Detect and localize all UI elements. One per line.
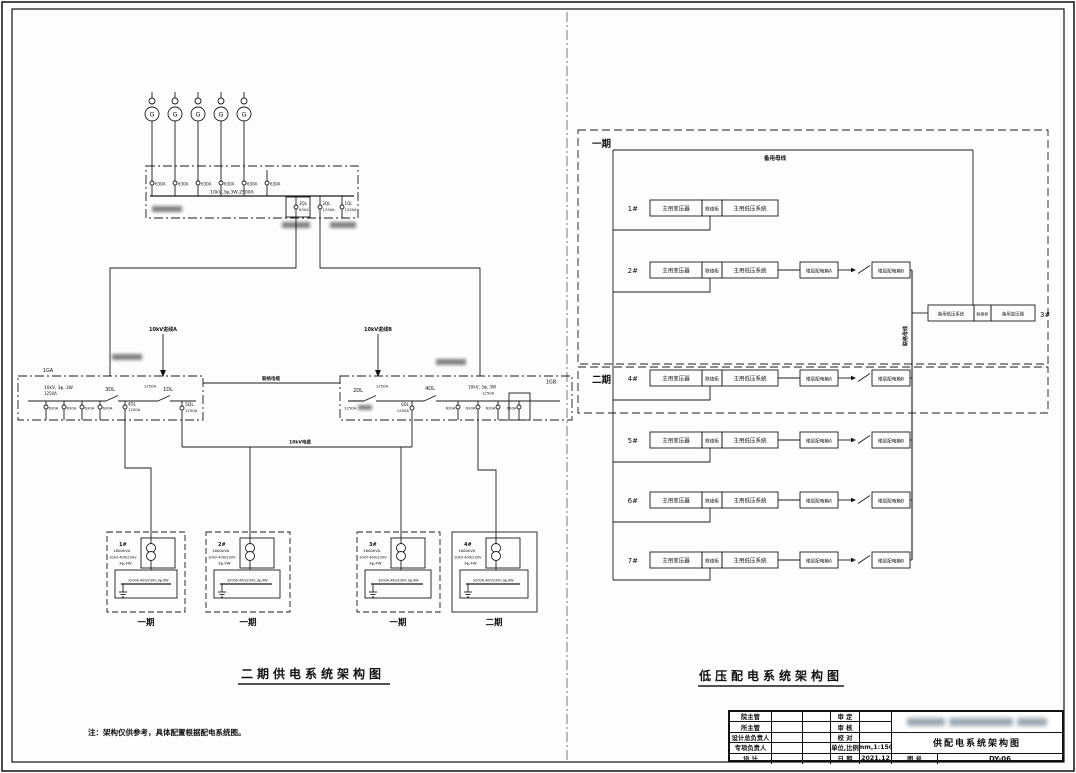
tx-ratio: 10kV-400/230V bbox=[359, 556, 387, 560]
signature-cell bbox=[772, 733, 803, 743]
signature-cell bbox=[772, 743, 803, 753]
bus-b-amp-low: 1250A bbox=[344, 406, 357, 411]
bus-b-box: 1GB 2DL 1250A 4DL 1250A 6DL 1250A 10kV, … bbox=[340, 376, 572, 447]
bus-b-amp: 1250A bbox=[482, 391, 495, 396]
gen-breaker-label: 630A bbox=[270, 182, 281, 187]
gen-to-bus-routing bbox=[110, 218, 480, 376]
main-transformer-box: 主用变压器 bbox=[662, 557, 690, 565]
bus-a-feeder-amp: 630A bbox=[49, 406, 59, 411]
tie-cabinet-box: 联络柜 bbox=[705, 558, 719, 565]
bus-a-feeder-amp: 630A bbox=[85, 406, 95, 411]
titleblock-label: 所主管 bbox=[730, 722, 772, 732]
tx-wiring: 3φ,4W bbox=[119, 561, 132, 566]
main-lv-system-box: 主用低压系统 bbox=[733, 267, 767, 275]
gen-breaker-label: 630A bbox=[224, 182, 235, 187]
tie-cabinet-box: 联络柜 bbox=[705, 268, 719, 275]
tx-ratio: 10kV-400/230V bbox=[454, 556, 482, 560]
floor-box-b: 楼层配电箱B bbox=[878, 268, 904, 275]
bus-a-amp: 1250A bbox=[44, 391, 57, 396]
lv-row-backup-3: 备用低压系统 联络柜 备用变压器 3# bbox=[912, 305, 1050, 321]
titleblock-label: 单位,比例 bbox=[831, 743, 860, 753]
blurred-cable-spec bbox=[436, 359, 466, 365]
tie-cabinet-box: 联络柜 bbox=[977, 311, 989, 317]
tx-phase-label: 一期 bbox=[239, 617, 257, 628]
tie-cabinet-box: 联络柜 bbox=[705, 498, 719, 505]
row-no: 5# bbox=[628, 437, 638, 445]
tx-phase-label: 二期 bbox=[485, 617, 503, 628]
top-bus-label: 备用母线 bbox=[763, 154, 787, 162]
gen-bus-spec: 10kV,3φ,3W,2500A bbox=[210, 190, 254, 196]
tx-kva: 1600kVA bbox=[212, 548, 230, 553]
main-transformer-box: 主用变压器 bbox=[662, 205, 690, 213]
bus-b-feeder-amp: 630A bbox=[446, 406, 456, 411]
ql1-amp: 1250A bbox=[345, 207, 358, 212]
lv-row-1: 1# 主用变压器 联络柜 主用低压系统 bbox=[613, 200, 778, 230]
main-transformer-box: 主用变压器 bbox=[662, 375, 690, 383]
ql3-amp: 630A bbox=[299, 207, 309, 212]
floor-box-b: 楼层配电箱B bbox=[878, 558, 904, 565]
drawing-sheet: G G G G G 63 bbox=[0, 0, 1076, 773]
gen-breaker-label: 630A bbox=[247, 182, 258, 187]
tx-lv-bus: 3200A,400/230V,3φ,4W bbox=[473, 579, 514, 583]
row-no: 2# bbox=[628, 267, 638, 275]
blurred-label bbox=[330, 222, 356, 228]
generator-bus-box: 630A 630A 630A 630A 630A 630A 10kV,3φ,3W… bbox=[146, 166, 358, 228]
backup-lv-system-box: 备用低压系统 bbox=[938, 311, 965, 318]
bus-b-feeder-amp: 630A bbox=[486, 406, 496, 411]
bus-a-box: 1GA 10kV, 3φ, 3W 1250A 3DL 1250A 1DL 630… bbox=[18, 368, 203, 447]
row-no: 7# bbox=[628, 557, 638, 565]
titleblock-value bbox=[860, 733, 892, 743]
tx-phase-label: 一期 bbox=[389, 617, 407, 628]
titleblock-label: 审 核 bbox=[831, 722, 860, 732]
tx-kva: 1600kVA bbox=[113, 548, 131, 553]
dl3-label: 3DL bbox=[105, 387, 115, 393]
tie-cabinet-box: 联络柜 bbox=[705, 438, 719, 445]
backup-transformer-box: 备用变压器 bbox=[1002, 311, 1025, 318]
signature-cell bbox=[803, 733, 831, 743]
phase1-section-label: 一期 bbox=[592, 138, 611, 150]
generator-4: G bbox=[214, 92, 228, 181]
floor-box-a: 楼层配电箱A bbox=[806, 558, 833, 565]
floor-box-b: 楼层配电箱B bbox=[878, 438, 904, 445]
tx-wiring: 3φ,4W bbox=[218, 561, 231, 566]
blurred-label bbox=[358, 405, 372, 410]
floor-box-a: 楼层配电箱A bbox=[806, 376, 833, 383]
lv-row-2: 2# 主用变压器 联络柜 主用低压系统 楼层配电箱A 楼层配电箱B bbox=[613, 262, 912, 292]
generator-symbol: G bbox=[241, 111, 246, 119]
blurred-cable-spec bbox=[112, 354, 142, 360]
figure-number-value: DY-06 bbox=[938, 754, 1062, 764]
tie-upper-label: 联络电缆 bbox=[262, 375, 280, 382]
titleblock-label: 专项负责人 bbox=[730, 743, 772, 753]
substation-1: 1# 1600kVA 10kV-400/230V 3φ,4W 3200A,400… bbox=[107, 532, 185, 628]
right-title-group: 低压配电系统架构图 bbox=[698, 668, 844, 686]
main-lv-system-box: 主用低压系统 bbox=[733, 375, 767, 383]
tx-lv-bus: 3200A,400/230V,3φ,4W bbox=[227, 579, 268, 583]
blurred-label bbox=[152, 206, 182, 212]
floor-box-a: 楼层配电箱A bbox=[806, 268, 833, 275]
tx-ratio: 10kV-400/230V bbox=[109, 556, 137, 560]
dl6-label: 6DL bbox=[401, 402, 410, 407]
generator-5: G bbox=[237, 92, 251, 181]
signature-cell bbox=[772, 712, 803, 722]
bus-a-feeder-amp: 630A bbox=[67, 406, 77, 411]
substation-3: 3# 1600kVA 10kV-400/230V 3φ,4W 3200A,400… bbox=[357, 532, 440, 628]
bus-a-feeder-amp: 630A bbox=[103, 406, 113, 411]
titleblock-label: 审 定 bbox=[831, 712, 860, 722]
tx-kva: 1600kVA bbox=[458, 548, 476, 553]
figure-number-label: 图 号 bbox=[892, 754, 938, 764]
substation-2: 2# 1600kVA 10kV-400/230V 3φ,4W 3200A,400… bbox=[206, 532, 290, 628]
tx-kva: 1600kVA bbox=[363, 548, 381, 553]
generator-2: G bbox=[168, 92, 182, 181]
main-lv-system-box: 主用低压系统 bbox=[733, 497, 767, 505]
tie-cabinet-box: 联络柜 bbox=[705, 376, 719, 383]
bus-b-dl4-label: 4DL bbox=[425, 386, 435, 392]
main-lv-system-box: 主用低压系统 bbox=[733, 205, 767, 213]
signature-cell bbox=[803, 754, 831, 764]
titleblock-label: 院主管 bbox=[730, 712, 772, 722]
phase2-supply-diagram: G G G G G 63 bbox=[18, 92, 572, 737]
floor-box-b: 楼层配电箱B bbox=[878, 376, 904, 383]
generator-symbol: G bbox=[149, 111, 154, 119]
ql2-label: 2QL bbox=[323, 201, 332, 206]
titleblock-label: 设计总负责人 bbox=[730, 733, 772, 743]
dl2-amp: 1250A bbox=[376, 384, 389, 389]
bus-a-name: 1GA bbox=[43, 368, 54, 374]
signature-cell bbox=[803, 743, 831, 753]
bus-b-spec: 10kV, 3φ, 3W bbox=[468, 385, 496, 390]
right-diagram-title: 低压配电系统架构图 bbox=[698, 668, 843, 683]
titleblock-value bbox=[860, 712, 892, 722]
substation-4: 4# 1600kVA 10kV-400/230V 3φ,4W 3200A,400… bbox=[452, 532, 537, 628]
left-title-group: 二期供电系统架构图 注：架构仅供参考，具体配置根据配电系统图。 bbox=[88, 666, 390, 737]
tx-lv-bus: 3200A,400/230V,3φ,4W bbox=[128, 579, 169, 583]
titleblock-label: 日 期 bbox=[831, 754, 860, 764]
row-no: 3# bbox=[1040, 311, 1050, 319]
lv-row-5: 5# 主用变压器 联络柜 主用低压系统 楼层配电箱A 楼层配电箱B bbox=[613, 432, 912, 462]
dl1-amp: 1250A bbox=[144, 384, 157, 389]
gen-breaker-label: 630A bbox=[155, 182, 166, 187]
ql3-label: 3QL bbox=[299, 201, 308, 206]
lv-row-4: 4# 主用变压器 联络柜 主用低压系统 楼层配电箱A 楼层配电箱B bbox=[613, 370, 912, 400]
dl4-amp: 1250A bbox=[128, 407, 141, 412]
date-value: 2021.12 bbox=[860, 754, 892, 764]
bus-b-feeder-amp: 630A bbox=[507, 406, 517, 411]
bus-b-name: 1GB bbox=[546, 380, 557, 386]
main-lv-system-box: 主用低压系统 bbox=[733, 557, 767, 565]
feeder-b-label: 10kV进线B bbox=[364, 326, 392, 333]
floor-box-b: 楼层配电箱B bbox=[878, 498, 904, 505]
generator-group: G G G G G bbox=[145, 92, 251, 181]
feeder-a-label: 10kV进线A bbox=[149, 326, 177, 333]
main-transformer-box: 主用变压器 bbox=[662, 497, 690, 505]
signature-cell bbox=[803, 712, 831, 722]
title-block: 院主管 所主管 设计总负责人 专项负责人 设 计 审 定 审 核 校 对 单位,… bbox=[728, 710, 1064, 762]
titleblock-label: 校 对 bbox=[831, 733, 860, 743]
incoming-feeders: 10kV进线A 10kV进线B bbox=[112, 326, 466, 377]
signature-cell bbox=[772, 754, 803, 764]
row-no: 4# bbox=[628, 375, 638, 383]
tx-wiring: 3φ,4W bbox=[464, 561, 477, 566]
tx-wiring: 3φ,4W bbox=[369, 561, 382, 566]
cad-canvas: G G G G G 63 bbox=[0, 0, 1076, 773]
dl5-amp: 1250A bbox=[185, 408, 198, 413]
left-diagram-title: 二期供电系统架构图 bbox=[241, 666, 385, 681]
phase2-section-label: 二期 bbox=[592, 374, 611, 386]
ql1-label: 1QL bbox=[345, 201, 354, 206]
dl6-amp: 1250A bbox=[397, 408, 410, 413]
generator-symbol: G bbox=[218, 111, 223, 119]
row-no: 1# bbox=[628, 205, 638, 213]
tx-phase-label: 一期 bbox=[137, 617, 155, 628]
titleblock-value bbox=[860, 722, 892, 732]
main-lv-system-box: 主用低压系统 bbox=[733, 437, 767, 445]
generator-1: G bbox=[145, 92, 159, 181]
gen-breaker-label: 630A bbox=[201, 182, 212, 187]
generator-3: G bbox=[191, 92, 205, 181]
generator-symbol: G bbox=[172, 111, 177, 119]
tx-lv-bus: 3200A,400/230V,3φ,4W bbox=[378, 579, 419, 583]
drawing-title: 供配电系统架构图 bbox=[892, 733, 1062, 754]
company-name-redacted bbox=[892, 712, 1062, 733]
lv-row-7: 7# 主用变压器 联络柜 主用低压系统 楼层配电箱A 楼层配电箱B bbox=[613, 552, 912, 580]
gen-breaker-label: 630A bbox=[178, 182, 189, 187]
dl4-label: 4DL bbox=[128, 402, 137, 407]
floor-box-a: 楼层配电箱A bbox=[806, 438, 833, 445]
main-transformer-box: 主用变压器 bbox=[662, 267, 690, 275]
signature-cell bbox=[772, 722, 803, 732]
dl2-label: 2DL bbox=[353, 388, 363, 394]
titleblock-label: 设 计 bbox=[730, 754, 772, 764]
transformer-feeds bbox=[125, 420, 496, 532]
tie-cabinet-box: 联络柜 bbox=[705, 206, 719, 213]
tie-lower-label: 10kV电缆 bbox=[289, 439, 311, 446]
floor-box-a: 楼层配电箱A bbox=[806, 498, 833, 505]
bus-b-feeder-amp: 630A bbox=[466, 406, 476, 411]
dl1-label: 1DL bbox=[163, 387, 173, 393]
left-diagram-note: 注：架构仅供参考，具体配置根据配电系统图。 bbox=[88, 727, 246, 737]
scale-value: mm,1:150 bbox=[860, 743, 892, 753]
tx-ratio: 10kV-400/230V bbox=[208, 556, 236, 560]
ql2-amp: 1250A bbox=[323, 207, 336, 212]
tie-bus-label: 联络母线 bbox=[902, 326, 909, 346]
main-transformer-box: 主用变压器 bbox=[662, 437, 690, 445]
generator-symbol: G bbox=[195, 111, 200, 119]
row-no: 6# bbox=[628, 497, 638, 505]
lv-row-6: 6# 主用变压器 联络柜 主用低压系统 楼层配电箱A 楼层配电箱B bbox=[613, 492, 912, 522]
signature-cell bbox=[803, 722, 831, 732]
lv-distribution-diagram: 一期 二期 备用母线 联络母线 1# 主用变压器 联络柜 主用低压系统 2# 主… bbox=[578, 130, 1050, 686]
